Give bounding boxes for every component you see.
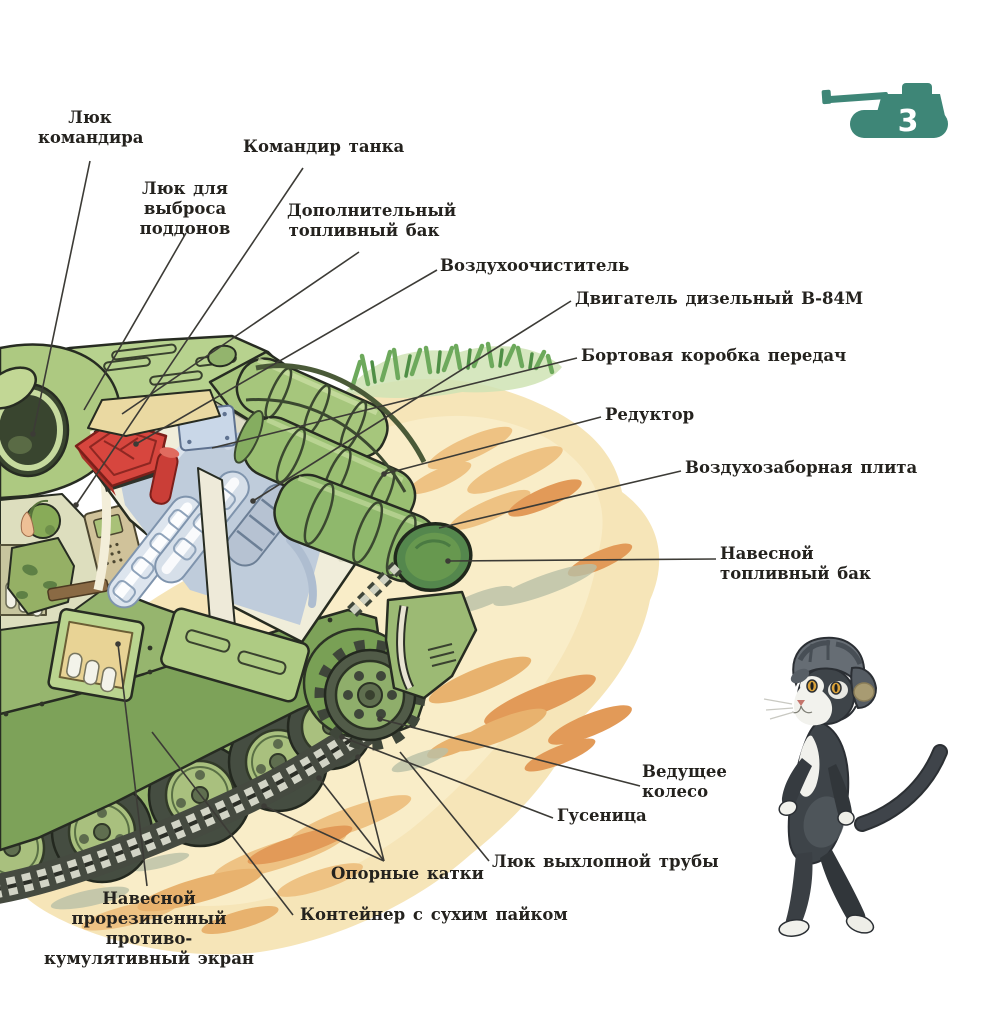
cat-leg <box>786 852 813 930</box>
label-track: Гусеница <box>557 806 647 826</box>
cat-whiskers <box>764 699 794 719</box>
label-additional-fuel-tank: Дополнительный топливный бак <box>287 201 441 241</box>
cat-mascot <box>764 638 940 938</box>
grass-tuft <box>345 344 562 398</box>
label-dry-ration-container: Контейнер с сухим пайком <box>300 905 568 925</box>
label-diesel-engine: Двигатель дизельный В-84М <box>575 289 863 309</box>
label-air-cleaner: Воздухоочиститель <box>440 256 629 276</box>
label-commander-hatch: Люк командира <box>38 108 142 148</box>
tank-icon <box>822 83 948 138</box>
label-air-intake-plate: Воздухозаборная плита <box>685 458 917 478</box>
label-pallet-ejection-hatch: Люк для выброса поддонов <box>98 179 272 239</box>
page-badge: 3 <box>822 83 948 139</box>
label-drive-wheel: Ведущее колесо <box>642 762 727 802</box>
book-page: 3 Люк командира Командир танка Люк для в… <box>0 0 1000 1021</box>
label-anti-cumulative-screen: Навесной прорезиненный противо- кумуляти… <box>25 889 273 969</box>
label-side-gearbox: Бортовая коробка передач <box>581 346 846 366</box>
label-tank-commander: Командир танка <box>243 137 404 157</box>
label-reduction-gear: Редуктор <box>605 405 694 425</box>
page-number: 3 <box>898 104 919 139</box>
label-mounted-fuel-tank: Навесной топливный бак <box>720 544 871 584</box>
label-road-wheels: Опорные катки <box>331 864 484 884</box>
ration-crate <box>48 608 145 701</box>
label-exhaust-pipe-hatch: Люк выхлопной трубы <box>492 852 719 872</box>
